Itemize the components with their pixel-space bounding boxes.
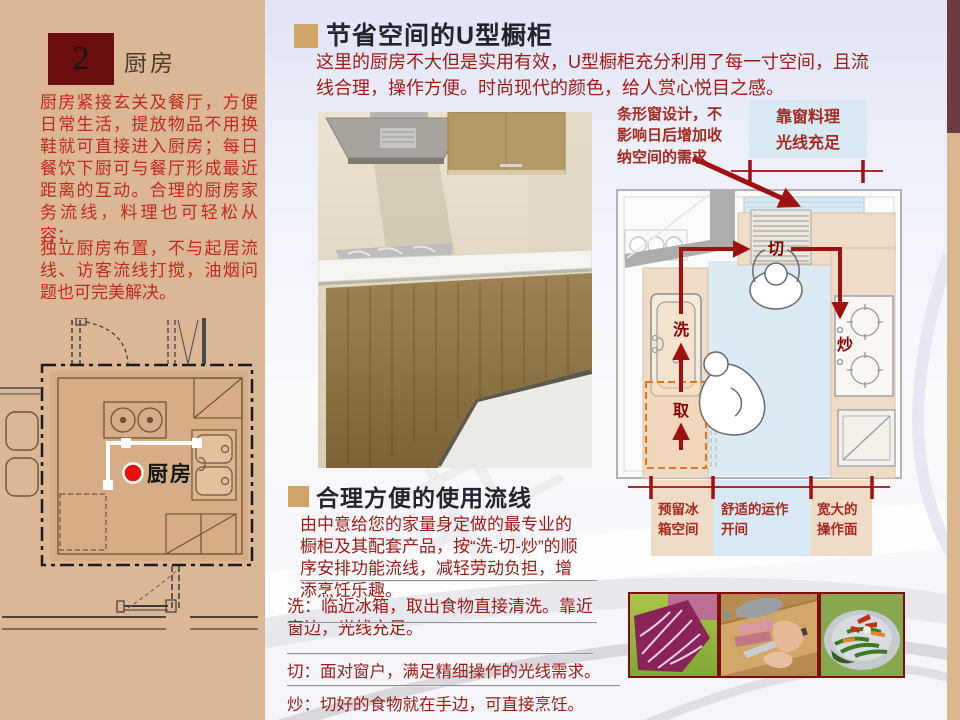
edge-bar-tan: [947, 133, 960, 720]
photo-cutting-fish: [719, 592, 819, 678]
plan-chair: [6, 458, 38, 496]
dim-label-counter: 宽大的操作面: [817, 500, 863, 541]
dim-label-work: 舒适的运作开间: [721, 500, 793, 541]
workflow-item-fry: 炒：切好的食物就在手边，可直接烹饪。: [287, 691, 632, 715]
workflow-item-cut: 切：面对窗户，满足精细操作的光线需求。: [287, 658, 632, 682]
separator-line: [300, 580, 597, 581]
diagram-sink: [651, 294, 701, 396]
edge-bar-maroon: [947, 0, 960, 133]
plan-stove: [104, 402, 166, 438]
photo-wash-ingredient: [628, 592, 719, 678]
bullet-square-icon: [294, 24, 318, 48]
diagram-callout-window: 条形窗设计，不影响日后增加收纳空间的需求: [617, 104, 729, 168]
bullet-square-icon: [288, 486, 309, 507]
station-wash-label: 洗: [673, 320, 689, 339]
sidebar-paragraph-2: 独立厨房布置，不与起居流线、访客流线打搅，油烟问题也可完美解决。: [40, 238, 258, 304]
plan-door-bottom: [2, 566, 258, 629]
sidebar-paragraph-1: 厨房紧接玄关及餐厅，方便日常生活，提放物品不用换鞋就可直接进入厨房；每日餐饮下厨…: [40, 92, 258, 247]
slide: 2 厨房 厨房紧接玄关及餐厅，方便日常生活，提放物品不用换鞋就可直接进入厨房；每…: [0, 0, 960, 720]
sidebar-floorplan: 厨房: [0, 318, 265, 638]
sidebar: 2 厨房 厨房紧接玄关及餐厅，方便日常生活，提放物品不用换鞋就可直接进入厨房；每…: [0, 0, 265, 720]
callout-light-line2: 光线充足: [749, 131, 867, 157]
plan-room-label: 厨房: [147, 462, 193, 486]
separator-line: [287, 622, 597, 623]
section2-body: 由中意给您的家量身定做的最专业的橱柜及其配套产品，按“洗-切-炒”的顺序安排功能…: [300, 514, 587, 602]
section-number-badge: 2: [48, 33, 114, 85]
diagram-callout-light: 靠窗料理 光线充足: [749, 100, 867, 158]
plan-chair: [6, 412, 38, 450]
plan-room-dot: [124, 464, 143, 483]
upper-cabinet: [448, 112, 565, 175]
fridge-space: [646, 382, 706, 468]
plan-left-walls: [0, 388, 42, 394]
callout-light-line1: 靠窗料理: [749, 105, 867, 131]
workflow-item-wash: 洗：临近冰箱，取出食物直接清洗。靠近窗边，光线充足。: [287, 596, 605, 641]
station-take-label: 取: [673, 402, 689, 420]
station-fry-label: 炒: [837, 336, 853, 354]
kitchen-photo: [318, 112, 592, 468]
kitchen-diagram: 切 洗 炒 取 条形窗设计，不影响日后增加收纳空间的需求 靠窗料理 光线充足 预…: [613, 98, 909, 570]
range-hood: [326, 112, 466, 164]
sidebar-title: 厨房: [124, 44, 176, 78]
separator-line: [287, 653, 593, 654]
food-photo-strip: [628, 592, 905, 678]
corner-cabinet: [838, 410, 895, 466]
station-cut-label: 切: [768, 240, 784, 258]
plan-flue: [168, 318, 204, 364]
dim-label-fridge: 预留冰箱空间: [658, 500, 704, 541]
photo-stirfry-dish: [819, 592, 905, 678]
section1-body: 这里的厨房不大但是实用有效，U型橱柜充分利用了每一寸空间，且流线合理，操作方便。…: [316, 50, 882, 101]
section1-title: 节省空间的U型橱柜: [326, 16, 553, 52]
separator-line: [287, 685, 620, 686]
plan-door-top: [72, 318, 128, 364]
section2-title: 合理方便的使用流线: [316, 479, 532, 513]
top-dimension: [731, 160, 883, 183]
